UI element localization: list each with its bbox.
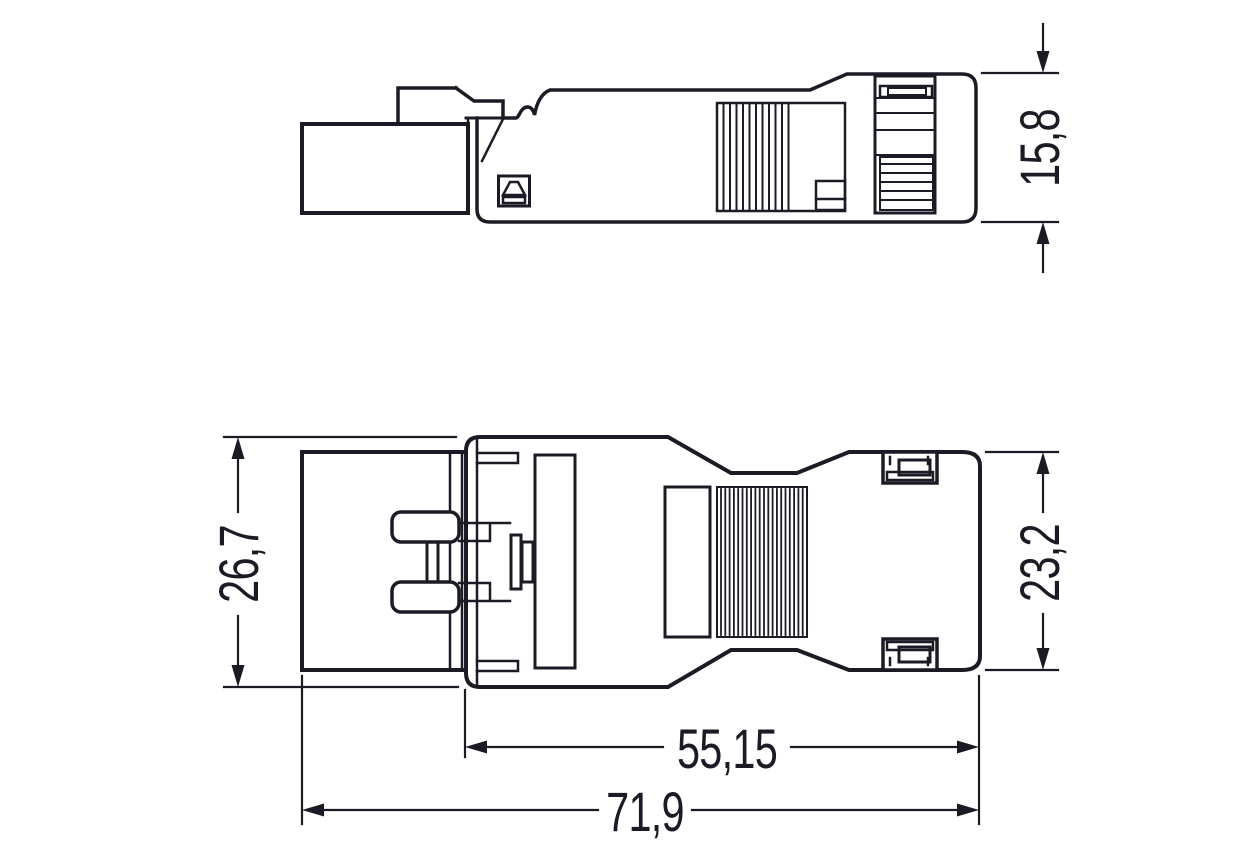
top-rear-latch-lower	[883, 639, 937, 670]
top-view	[224, 437, 1058, 824]
side-plug-housing	[302, 124, 468, 213]
dim-label-total-length: 71,9	[606, 784, 684, 840]
top-contact-pin-1	[392, 512, 459, 542]
dim-label-housing-length: 55,15	[677, 721, 777, 777]
top-rear-latch-upper	[883, 452, 937, 483]
top-contact-pin-2	[392, 582, 459, 612]
side-plug-latch	[398, 88, 456, 122]
technical-drawing-page: 15,8 26,7 23,2 55,15 71,9	[0, 0, 1257, 852]
dim-label-hood-width: 26,7	[211, 525, 267, 603]
side-view	[302, 24, 1058, 272]
dim-label-side-height: 15,8	[1012, 109, 1068, 187]
dim-label-rear-width: 23,2	[1012, 524, 1068, 602]
top-plug-housing	[302, 452, 466, 670]
